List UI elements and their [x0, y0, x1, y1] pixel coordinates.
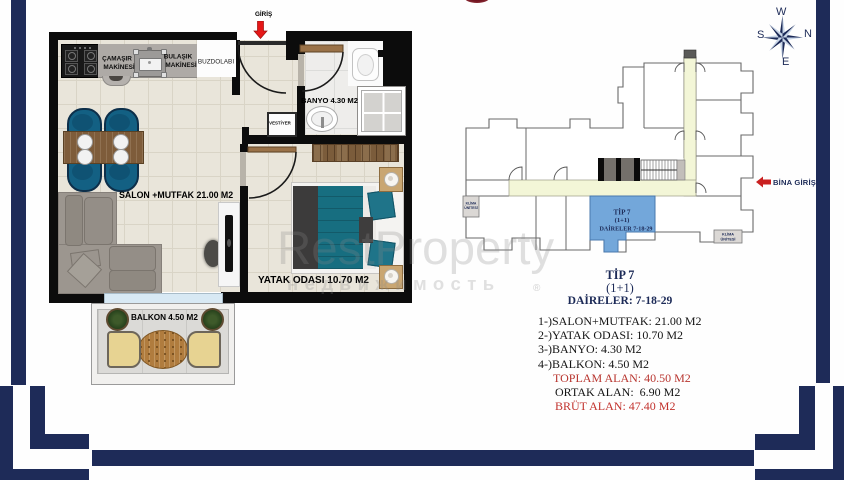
svg-text:ÇAMAŞIR: ÇAMAŞIR: [102, 56, 132, 63]
svg-text:MAKİNESİ: MAKİNESİ: [165, 60, 196, 69]
svg-text:BULAŞIK: BULAŞIK: [164, 54, 193, 61]
svg-text:BUZDOLABI: BUZDOLABI: [198, 59, 234, 66]
svg-text:VESTİYER: VESTİYER: [269, 121, 292, 126]
svg-text:MAKİNESİ: MAKİNESİ: [103, 62, 134, 71]
